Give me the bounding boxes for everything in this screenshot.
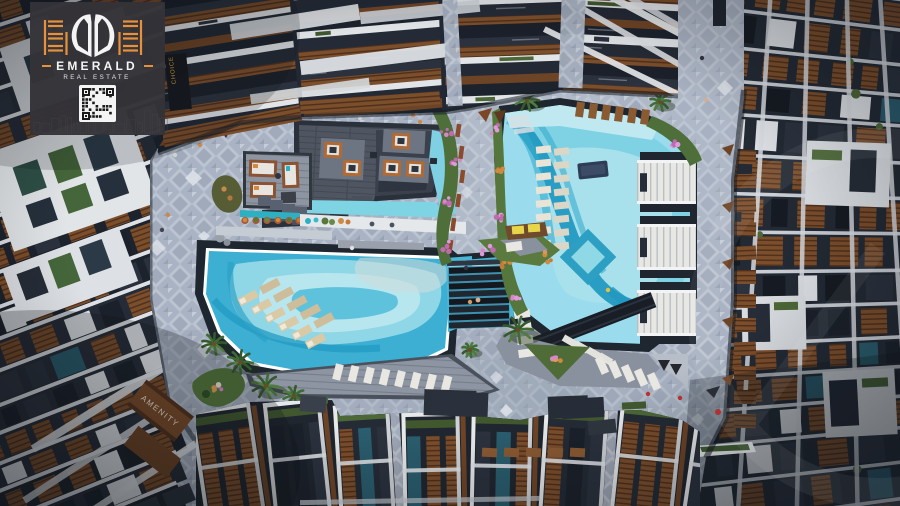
svg-text:EMERALD: EMERALD	[56, 59, 138, 73]
svg-text:REAL ESTATE: REAL ESTATE	[63, 74, 130, 81]
